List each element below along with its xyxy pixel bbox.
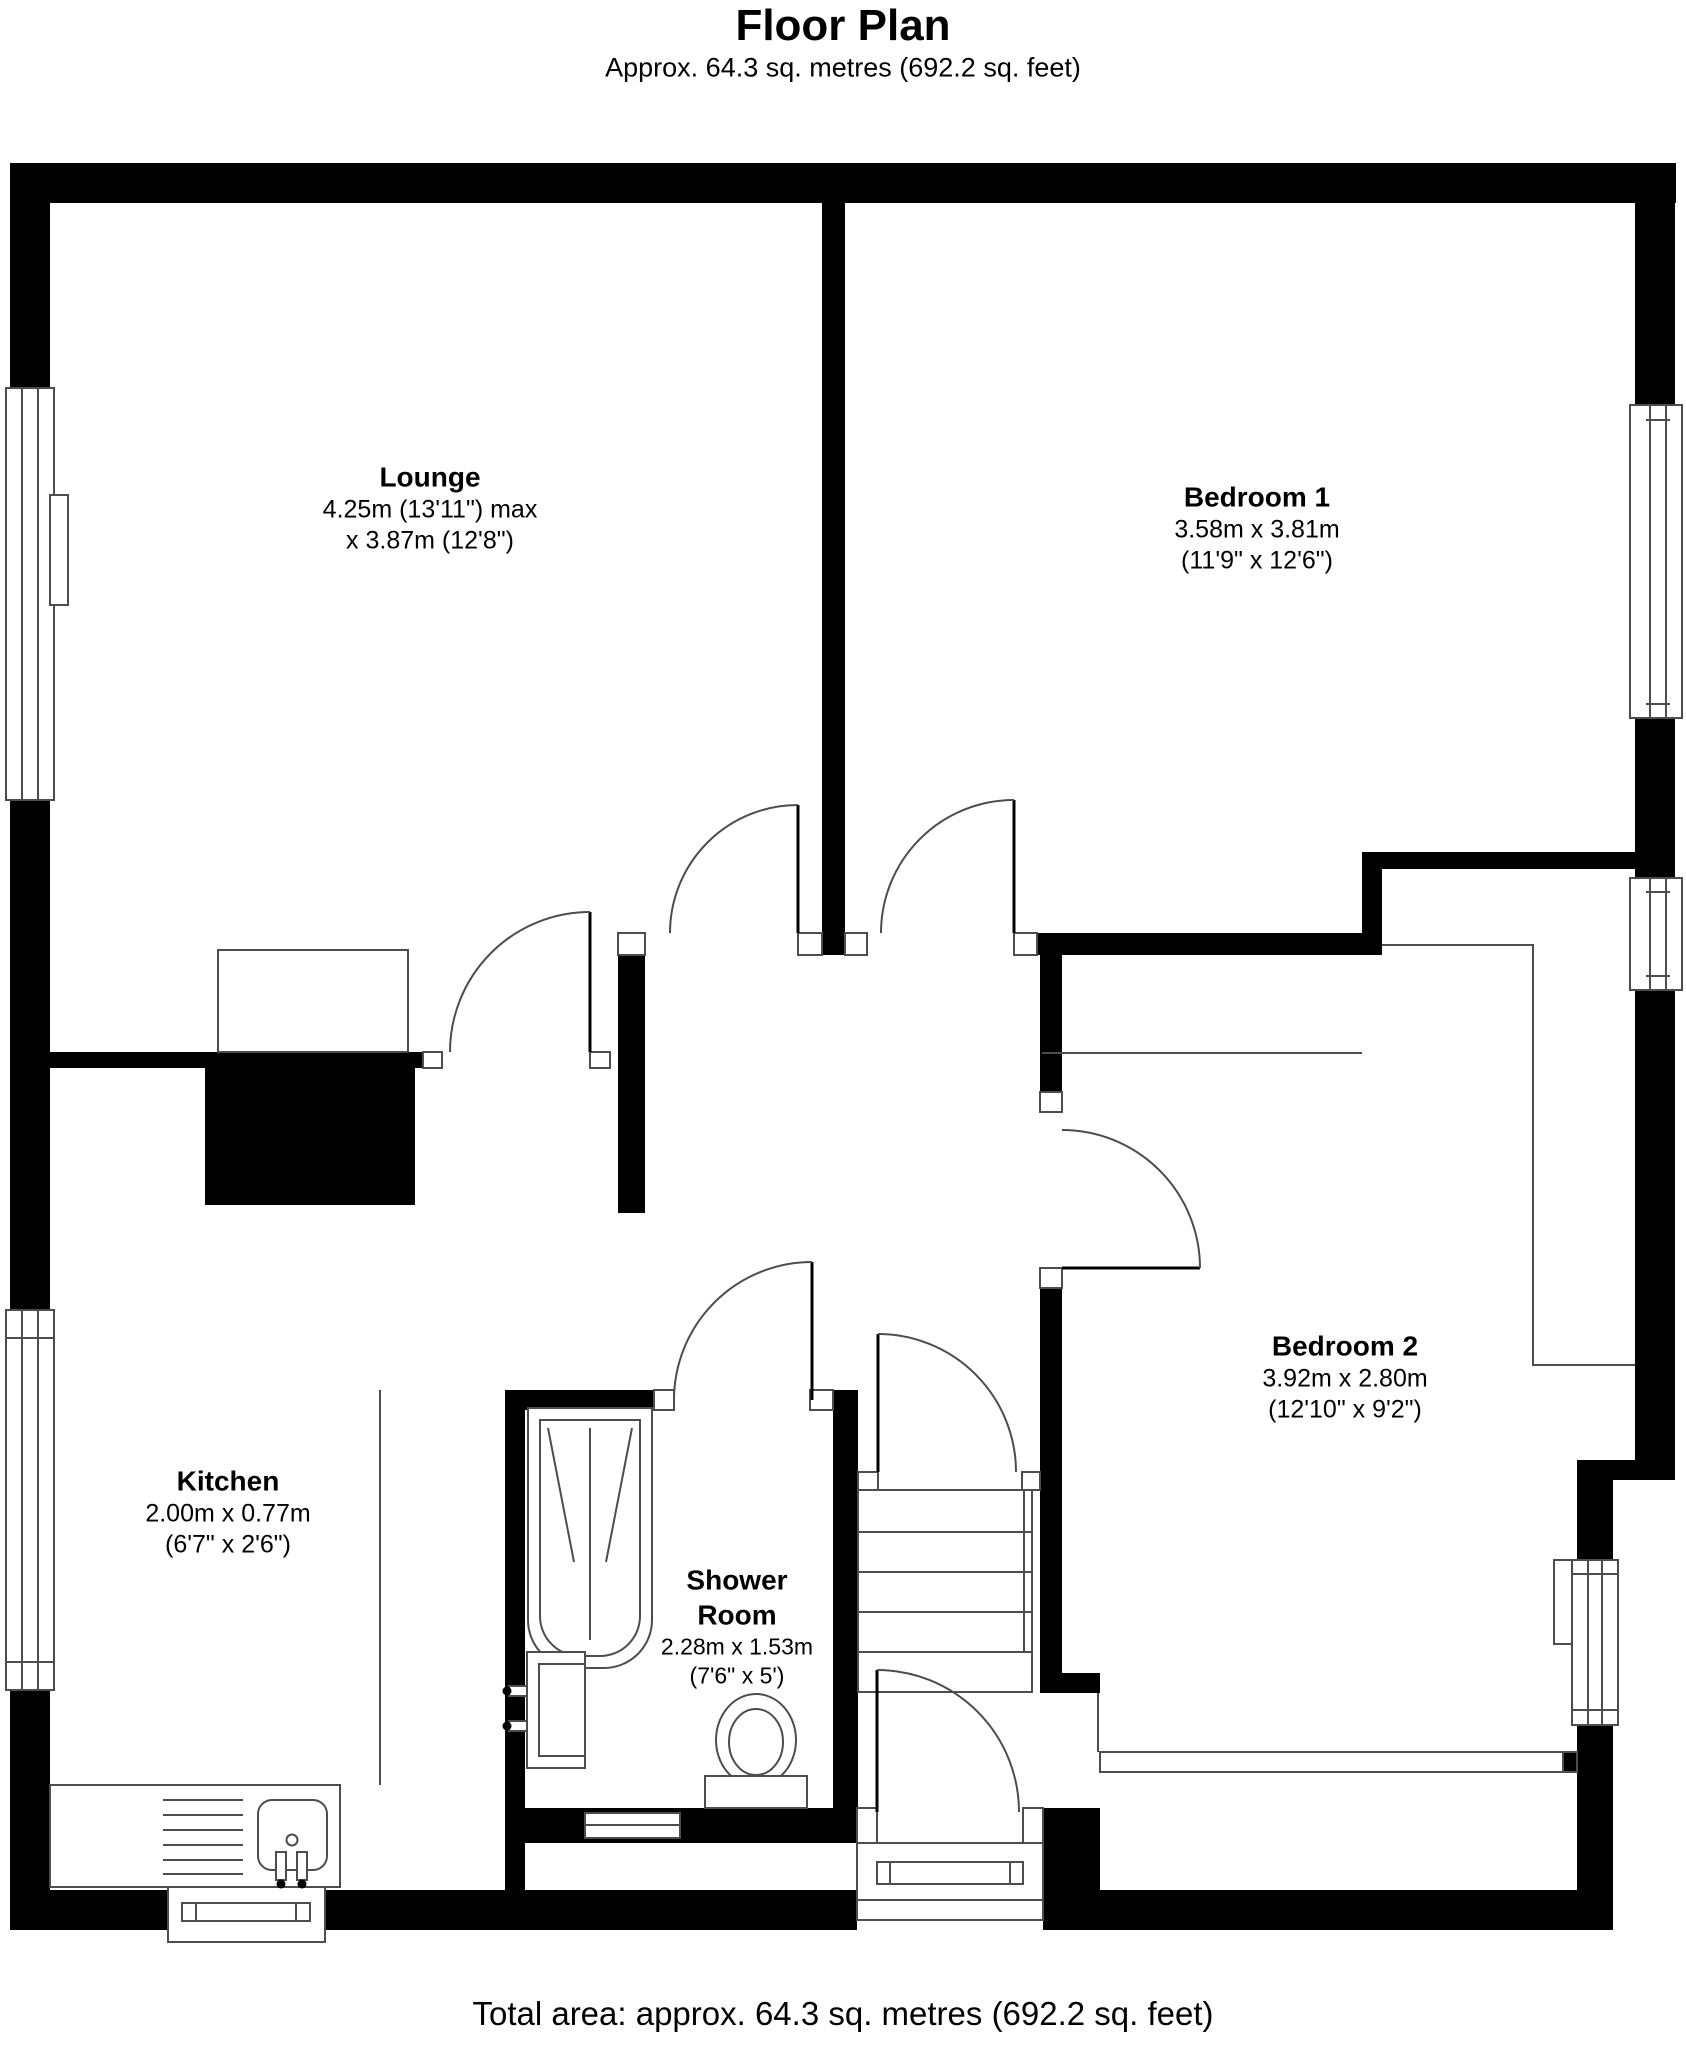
- sink-tap: [297, 1852, 307, 1880]
- wall-right-top: [1635, 163, 1675, 405]
- jamb: [618, 933, 645, 955]
- room-dim-metric: 2.28m x 1.53m: [652, 1632, 822, 1661]
- room-dim-imperial: (11'9" x 12'6"): [1174, 546, 1339, 577]
- door-swing-arc: [878, 1334, 1016, 1472]
- window-sill-bed2: [1554, 1560, 1572, 1644]
- jamb: [1040, 1092, 1062, 1112]
- bed2-bottom-thin-wall: [1100, 1752, 1563, 1772]
- wall-bed1-bed2-connector: [1362, 852, 1382, 955]
- room-dim-imperial: x 3.87m (12'8"): [323, 526, 538, 557]
- wall-entrance-right: [1043, 1808, 1100, 1930]
- wall-kitchen-top: [50, 1052, 423, 1068]
- door-swing-arc: [670, 805, 798, 933]
- jamb: [798, 933, 822, 955]
- room-dim-metric: 2.00m x 0.77m: [145, 1498, 310, 1529]
- wall-bed1-bottom: [1037, 933, 1382, 955]
- basin-tap-head: [503, 1687, 512, 1696]
- room-dim-metric: 4.25m (13'11") max: [323, 494, 538, 525]
- wall-right-lower1: [1577, 1480, 1613, 1560]
- staircase: [858, 1490, 1032, 1692]
- porch-bar-tick: [877, 1862, 890, 1884]
- jamb: [857, 1808, 877, 1843]
- window-bar-tick: [296, 1903, 310, 1921]
- door-lounge: [670, 805, 798, 933]
- wall-bed2-left-upper: [1040, 955, 1062, 1092]
- window-kitchen-left: [6, 1310, 54, 1690]
- jamb: [654, 1390, 674, 1410]
- basin: [527, 1652, 585, 1768]
- entrance-porch: [857, 1843, 1043, 1920]
- sink-tap-head: [277, 1880, 286, 1889]
- toilet-bowl-outer: [716, 1694, 796, 1786]
- room-dim-metric: 3.92m x 2.80m: [1262, 1363, 1427, 1394]
- stairs-outline: [858, 1490, 1032, 1692]
- wall-bottom-centre: [325, 1890, 857, 1930]
- jamb: [1040, 1268, 1062, 1288]
- jamb: [1023, 1808, 1043, 1843]
- chimney-breast: [205, 1068, 415, 1205]
- wall-top: [10, 163, 1676, 203]
- wall-bottom-left: [10, 1890, 168, 1930]
- jamb: [590, 1052, 610, 1068]
- wall-right-step: [1577, 1460, 1675, 1480]
- room-label-bedroom1: Bedroom 1 3.58m x 3.81m (11'9" x 12'6"): [1174, 479, 1339, 577]
- room-dim-imperial: (12'10" x 9'2"): [1262, 1395, 1427, 1426]
- room-dim-metric: 3.58m x 3.81m: [1174, 514, 1339, 545]
- bed2-recess-outline: [1382, 945, 1635, 1365]
- wall-bottom-right: [1043, 1890, 1613, 1930]
- wall-right-lower2: [1577, 1725, 1613, 1930]
- jamb: [1022, 1472, 1040, 1490]
- wall-hall-left: [618, 955, 645, 1213]
- floor-plan-page: Floor Plan Approx. 64.3 sq. metres (692.…: [0, 0, 1686, 2048]
- floor-plan-drawing: [0, 0, 1686, 2048]
- room-label-lounge: Lounge 4.25m (13'11") max x 3.87m (12'8"…: [323, 459, 538, 557]
- window-bar: [182, 1903, 310, 1921]
- window-bed2-upper-right: [1630, 878, 1682, 990]
- window-sill-lounge: [50, 495, 68, 605]
- sink-tap-head: [298, 1880, 307, 1889]
- wall-right-mid2: [1635, 990, 1675, 1460]
- wall-lounge-bed1-divider: [822, 203, 845, 955]
- wall-left-middle: [10, 800, 50, 1310]
- wall-left-upper: [10, 163, 50, 388]
- wall-bed2-left-step: [1040, 1673, 1100, 1693]
- room-name: Kitchen: [145, 1463, 310, 1498]
- bed2-bottom-wall-end: [1563, 1752, 1577, 1772]
- door-swing-arc: [1062, 1130, 1200, 1268]
- door-stairs-hall: [878, 1334, 1016, 1472]
- window-lounge-left: [6, 388, 54, 800]
- lounge-cupboard: [218, 950, 408, 1052]
- window-bar-tick: [182, 1903, 196, 1921]
- wall-bed2-left-lower: [1040, 1288, 1062, 1673]
- room-label-shower-room: Shower Room 2.28m x 1.53m (7'6" x 5'): [652, 1562, 822, 1690]
- room-name: Bedroom 2: [1262, 1328, 1427, 1363]
- wall-shower-right: [833, 1390, 858, 1843]
- room-name: Shower Room: [652, 1562, 822, 1632]
- porch-bar-tick: [1010, 1862, 1023, 1884]
- jamb: [1014, 933, 1037, 955]
- jamb: [423, 1052, 442, 1068]
- door-swing-arc: [674, 1262, 812, 1400]
- wall-shower-left: [505, 1390, 525, 1930]
- room-name: Lounge: [323, 459, 538, 494]
- room-dim-imperial: (7'6" x 5'): [652, 1661, 822, 1690]
- room-name: Bedroom 1: [1174, 479, 1339, 514]
- room-label-kitchen: Kitchen 2.00m x 0.77m (6'7" x 2'6"): [145, 1463, 310, 1561]
- jamb: [845, 933, 867, 955]
- door-kitchen: [450, 912, 590, 1052]
- porch-window-bar: [877, 1862, 1023, 1884]
- wall-right-mid1: [1635, 718, 1675, 878]
- total-area-text: Total area: approx. 64.3 sq. metres (692…: [472, 1995, 1213, 2033]
- basin-tap-head: [503, 1722, 512, 1731]
- door-swing-arc: [881, 800, 1014, 933]
- window-bed2-lower-right: [1572, 1560, 1618, 1725]
- door-shower-room: [674, 1262, 812, 1400]
- toilet-cistern: [705, 1776, 807, 1808]
- room-dim-imperial: (6'7" x 2'6"): [145, 1530, 310, 1561]
- jamb: [858, 1472, 878, 1490]
- wall-bed1-bed2-thin: [1382, 852, 1635, 869]
- door-swing-arc: [450, 912, 590, 1052]
- sink-tap: [276, 1852, 286, 1880]
- window-bed1-right: [1630, 405, 1682, 718]
- door-bedroom1: [881, 800, 1014, 933]
- kitchen-fixtures: [50, 1785, 340, 1889]
- basin-tap: [509, 1721, 527, 1731]
- door-bedroom2: [1062, 1130, 1200, 1268]
- room-label-bedroom2: Bedroom 2 3.92m x 2.80m (12'10" x 9'2"): [1262, 1328, 1427, 1426]
- basin-tap: [509, 1686, 527, 1696]
- interior-walls: [50, 203, 1635, 1930]
